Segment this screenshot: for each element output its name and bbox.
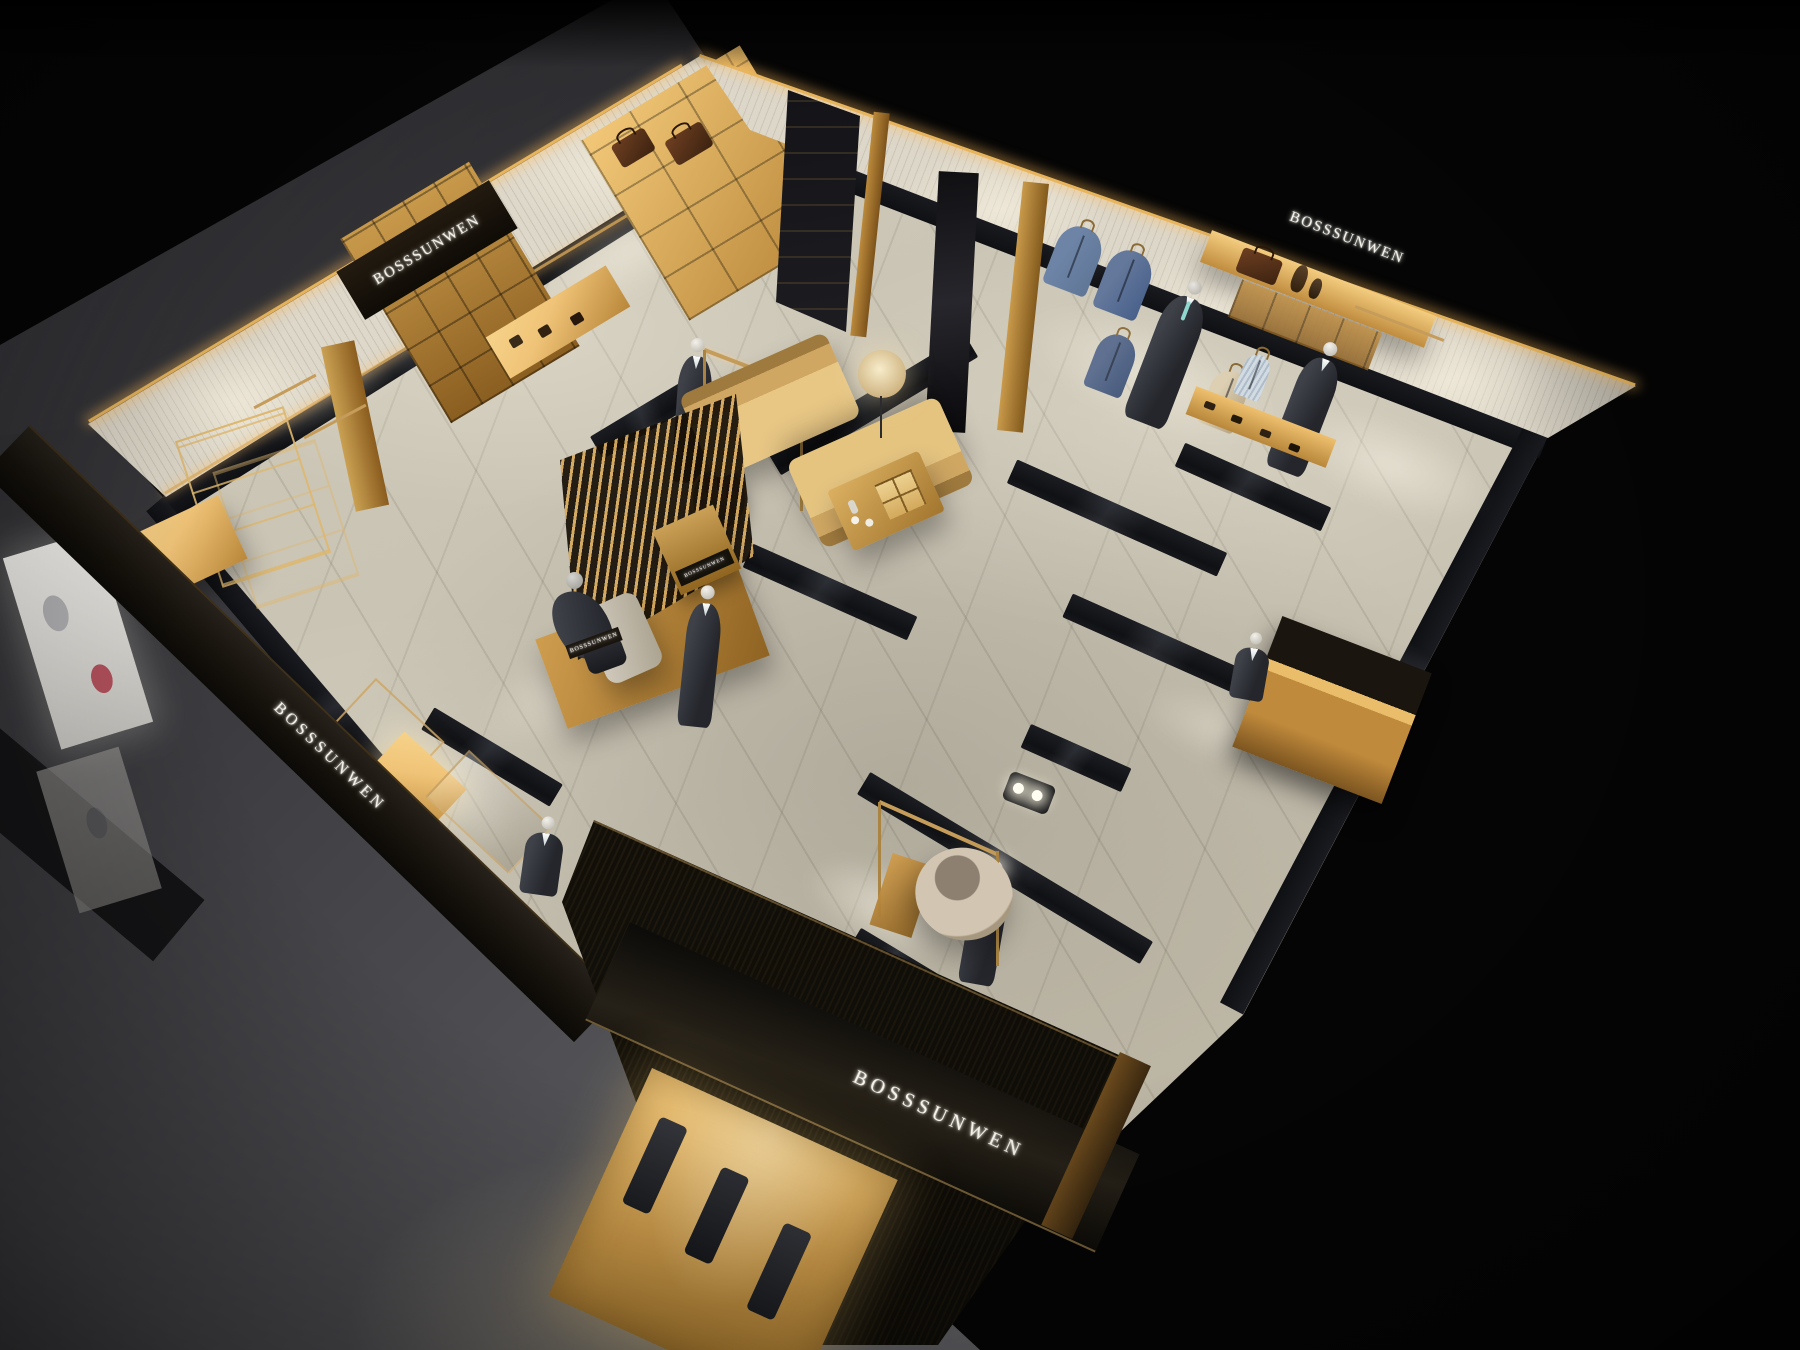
store-3d-render: BOSSSUNWEN BOSSSUNWEN: [0, 0, 1800, 1350]
floor-lamp: [858, 350, 906, 398]
shoe: [1230, 414, 1243, 424]
mannequin-legs: [621, 1116, 688, 1215]
shoe-box: [569, 311, 584, 326]
tea-cup: [864, 517, 875, 528]
shoe-box: [508, 334, 523, 349]
wall-right-sign-text: BOSSSUNWEN: [1287, 209, 1407, 268]
display-case-sign-text: BOSSSUNWEN: [684, 556, 726, 578]
shoe: [1259, 428, 1272, 438]
vase: [1288, 263, 1311, 294]
tea-pot: [847, 499, 859, 515]
mannequin-head: [540, 815, 555, 830]
floor-light-bulb: [1030, 788, 1044, 802]
shoe: [1288, 443, 1301, 453]
mannequin-legs: [683, 1166, 750, 1265]
shoe: [1203, 400, 1216, 410]
briefcase: [610, 127, 656, 169]
vase: [1307, 277, 1325, 301]
mannequin-head: [700, 585, 715, 600]
briefcase: [664, 121, 714, 167]
tea-cup: [850, 515, 861, 526]
floor-lamp-stem: [880, 396, 882, 438]
mannequin-legs: [746, 1222, 813, 1321]
mannequin-seated-head: [566, 572, 583, 589]
mannequin-head: [1249, 631, 1263, 645]
square-tray: [875, 469, 927, 520]
floor-light-bulb: [1011, 781, 1025, 795]
shoe-box: [537, 324, 552, 339]
